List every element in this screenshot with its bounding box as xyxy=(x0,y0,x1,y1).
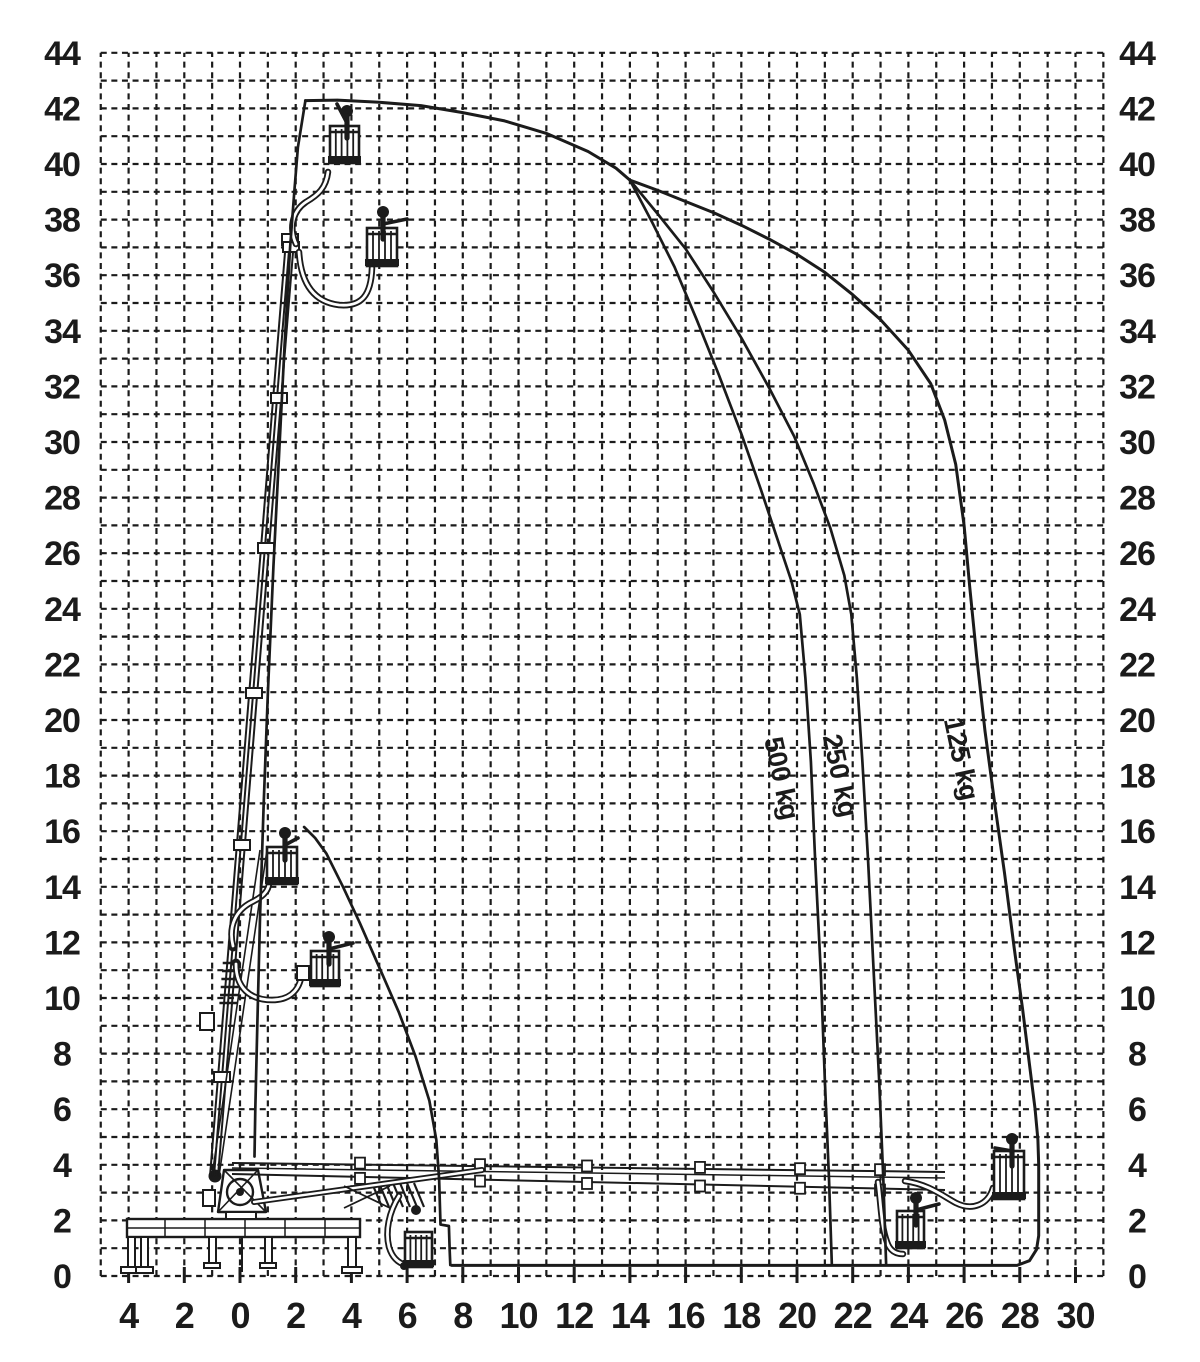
y-axis-label-left: 38 xyxy=(44,202,80,240)
x-axis-label: 20 xyxy=(778,1295,816,1336)
y-axis-label-left: 6 xyxy=(53,1091,71,1129)
y-axis-label-left: 10 xyxy=(44,980,80,1018)
y-axis-label-right: 38 xyxy=(1119,202,1155,240)
y-axis-label-left: 42 xyxy=(44,90,80,128)
y-axis-label-right: 6 xyxy=(1128,1091,1146,1129)
y-axis-label-right: 28 xyxy=(1119,480,1155,518)
capacity-label-group: 500 kg xyxy=(758,734,805,822)
x-axis-label: 4 xyxy=(342,1295,362,1336)
y-axis-label-left: 26 xyxy=(44,535,80,573)
platform-mid-up xyxy=(265,847,299,884)
y-axis-label-right: 0 xyxy=(1128,1258,1146,1296)
y-axis-label-left: 18 xyxy=(44,758,80,796)
envelope-inner-boundary xyxy=(304,827,450,1265)
platform-stowed xyxy=(403,1232,434,1267)
platform-outreach-low xyxy=(895,1211,926,1248)
y-axis-label-left: 30 xyxy=(44,424,80,462)
x-axis-label: 14 xyxy=(611,1295,650,1336)
y-axis-label-left: 0 xyxy=(53,1258,71,1296)
y-axis-label-right: 40 xyxy=(1119,146,1155,184)
y-axis-label-left: 32 xyxy=(44,368,80,406)
x-axis-label: 26 xyxy=(945,1295,983,1336)
capacity-label: 125 kg xyxy=(938,715,985,803)
platform-outreach-high xyxy=(992,1151,1026,1199)
platform-mid-folded xyxy=(309,951,341,986)
y-axis-label-right: 34 xyxy=(1119,313,1156,351)
y-axis-label-right: 22 xyxy=(1119,646,1155,684)
y-axis-label-left: 12 xyxy=(44,924,80,962)
y-axis-label-right: 24 xyxy=(1119,591,1156,629)
x-axis-label: 2 xyxy=(175,1295,194,1336)
y-axis-label-left: 28 xyxy=(44,480,80,518)
y-axis-label-right: 30 xyxy=(1119,424,1155,462)
y-axis-label-left: 22 xyxy=(44,646,80,684)
y-axis-label-left: 24 xyxy=(44,591,81,629)
x-axis-label: 2 xyxy=(286,1295,305,1336)
y-axis-label-right: 32 xyxy=(1119,368,1155,406)
y-axis-label-right: 12 xyxy=(1119,924,1155,962)
capacity-label: 500 kg xyxy=(758,734,805,822)
y-axis-label-left: 8 xyxy=(53,1036,71,1074)
work-envelope-diagram-page: 4202468101214161820222426283000224466881… xyxy=(0,0,1200,1362)
y-axis-label-right: 20 xyxy=(1119,702,1155,740)
x-axis-label: 10 xyxy=(499,1295,537,1336)
y-axis-label-left: 34 xyxy=(44,313,81,351)
x-axis-label: 24 xyxy=(889,1295,928,1336)
y-axis-label-left: 2 xyxy=(53,1202,71,1240)
y-axis-label-right: 16 xyxy=(1119,813,1155,851)
x-axis-label: 22 xyxy=(834,1295,872,1336)
y-axis-label-right: 2 xyxy=(1128,1202,1146,1240)
y-axis-label-right: 42 xyxy=(1119,90,1155,128)
envelope-500kg xyxy=(630,180,832,1263)
work-envelope-chart: 4202468101214161820222426283000224466881… xyxy=(0,0,1200,1362)
y-axis-label-right: 4 xyxy=(1128,1147,1147,1185)
axis-labels: 4202468101214161820222426283000224466881… xyxy=(44,35,1156,1336)
curve-labels: 500 kg250 kg125 kg xyxy=(758,715,984,823)
x-axis-label: 6 xyxy=(398,1295,417,1336)
capacity-label-group: 125 kg xyxy=(938,715,985,803)
y-axis-label-right: 14 xyxy=(1119,869,1156,907)
envelope-250kg xyxy=(630,180,886,1263)
x-axis-label: 4 xyxy=(119,1295,139,1336)
y-axis-label-left: 4 xyxy=(53,1147,72,1185)
y-axis-label-right: 10 xyxy=(1119,980,1155,1018)
y-axis-label-right: 18 xyxy=(1119,758,1155,796)
y-axis-label-right: 36 xyxy=(1119,257,1155,295)
y-axis-label-left: 14 xyxy=(44,869,81,907)
y-axis-label-left: 36 xyxy=(44,257,80,295)
x-axis-label: 18 xyxy=(722,1295,760,1336)
x-axis-label: 28 xyxy=(1001,1295,1039,1336)
y-axis-label-left: 44 xyxy=(44,35,81,73)
x-axis-label: 30 xyxy=(1056,1295,1094,1336)
y-axis-label-left: 40 xyxy=(44,146,80,184)
y-axis-label-right: 26 xyxy=(1119,535,1155,573)
y-axis-label-left: 20 xyxy=(44,702,80,740)
y-axis-label-right: 8 xyxy=(1128,1036,1146,1074)
x-axis-label: 16 xyxy=(667,1295,705,1336)
x-axis-label: 0 xyxy=(230,1295,249,1336)
x-axis-label: 12 xyxy=(555,1295,593,1336)
y-axis-label-left: 16 xyxy=(44,813,80,851)
y-axis-label-right: 44 xyxy=(1119,35,1156,73)
x-axis-label: 8 xyxy=(453,1295,472,1336)
